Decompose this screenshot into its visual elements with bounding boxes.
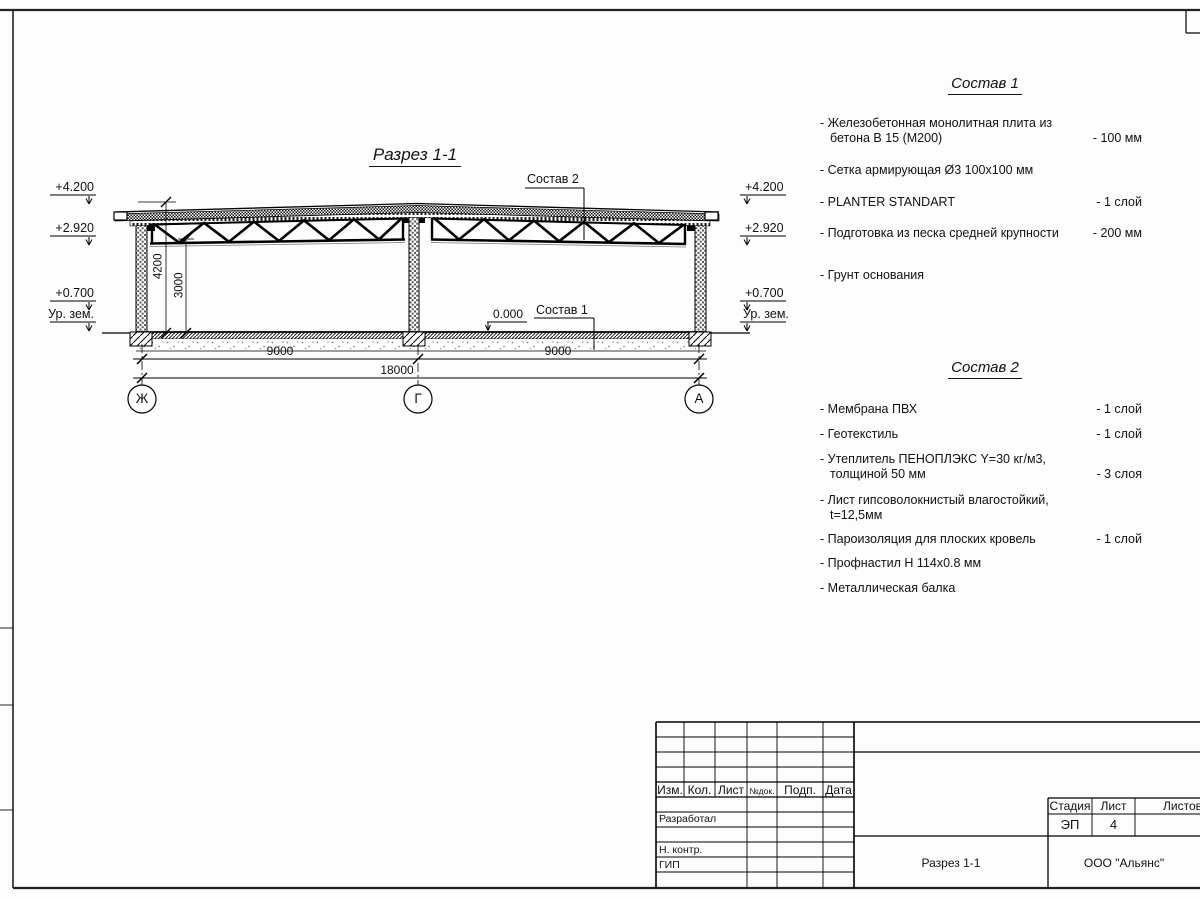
callout-sostav2: Состав 2	[527, 173, 579, 187]
titleblock-role-developed: Разработал	[659, 814, 716, 826]
sostav2-title: Состав 2	[905, 360, 1065, 377]
titleblock-doc-name: Разрез 1-1	[854, 857, 1048, 870]
elevation-plinth-left: +0.700	[30, 287, 94, 301]
titleblock-sheet-label: Лист	[1092, 800, 1135, 813]
titleblock-col-izm: Изм.	[656, 784, 684, 797]
list-item: - Геотекстиль - 1 слой	[820, 427, 1142, 442]
dim-total-span: 18000	[357, 364, 437, 377]
titleblock-col-data: Дата	[823, 784, 854, 797]
list-item: - Сетка армирующая Ø3 100х100 мм	[820, 163, 1142, 178]
axis-bubble-g: Г	[403, 392, 433, 407]
list-item: - Мембрана ПВХ - 1 слой	[820, 402, 1142, 417]
list-item: - Лист гипсоволокнистый влагостойкий, t=…	[820, 493, 1142, 523]
dim-height-3000: 3000	[174, 265, 187, 305]
floor-slab	[102, 332, 750, 351]
blueprint-sheet: Разрез 1-1 +4.200 +2.920 +0.700 Ур. зем.…	[0, 0, 1200, 900]
axis-bubble-a: А	[684, 392, 714, 407]
dim-height-4200: 4200	[153, 246, 166, 286]
list-item: - Утеплитель ПЕНОПЛЭКС Y=30 кг/м3, толщи…	[820, 452, 1142, 482]
list-item: - Железобетонная монолитная плита из бет…	[820, 116, 1142, 146]
titleblock-sheet-value: 4	[1092, 818, 1135, 832]
list-item: - PLANTER STANDART - 1 слой	[820, 195, 1142, 210]
elevation-truss-left: +2.920	[30, 222, 94, 236]
ground-level-label-right: Ур. зем.	[743, 308, 789, 322]
elevation-roof-top-right: +4.200	[745, 181, 784, 195]
list-item: - Металлическая балка	[820, 581, 1142, 596]
sostav1-title: Состав 1	[905, 76, 1065, 93]
titleblock-col-kol: Кол.	[684, 784, 715, 797]
axis-bubble-zh: Ж	[127, 392, 157, 407]
list-item: - Грунт основания	[820, 268, 1142, 283]
section-view-title: Разрез 1-1	[335, 146, 495, 165]
titleblock-stage-label: Стадия	[1048, 800, 1092, 813]
titleblock-col-list: Лист	[715, 784, 747, 797]
list-item: - Пароизоляция для плоских кровель - 1 с…	[820, 532, 1142, 547]
titleblock-company: ООО "Альянс"	[1048, 857, 1200, 870]
titleblock-col-podp: Подп.	[777, 784, 823, 797]
list-item: - Подготовка из песка средней крупности …	[820, 226, 1142, 241]
ground-level-label-left: Ур. зем.	[30, 308, 94, 322]
callout-sostav1: Состав 1	[536, 304, 588, 318]
titleblock-stage-value: ЭП	[1048, 818, 1092, 832]
titleblock-role-gip: ГИП	[659, 860, 680, 872]
elevation-roof-top-left: +4.200	[30, 181, 94, 195]
list-item: - Профнастил Н 114х0.8 мм	[820, 556, 1142, 571]
elevation-truss-right: +2.920	[745, 222, 784, 236]
elevation-plinth-right: +0.700	[745, 287, 784, 301]
zero-level-label: 0.000	[493, 308, 523, 321]
titleblock-col-dok: №док.	[747, 787, 777, 796]
titleblock-sheets-label: Листов	[1140, 800, 1200, 813]
dim-bay-right: 9000	[518, 345, 598, 358]
titleblock-role-ncontrol: Н. контр.	[659, 845, 702, 857]
dim-bay-left: 9000	[240, 345, 320, 358]
